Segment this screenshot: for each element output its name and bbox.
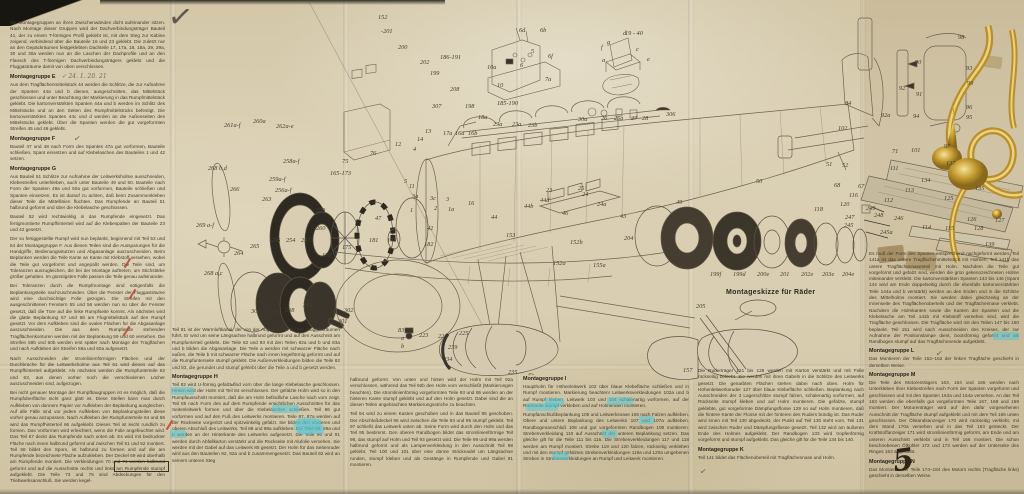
section-heading: Montagegruppe I: [523, 376, 689, 382]
part-number-label: 202e: [801, 271, 813, 278]
part-number-label: 118: [814, 206, 823, 213]
pencil-checkmark: ⌐: [527, 370, 535, 380]
part-number-label: 99: [967, 80, 973, 87]
section-heading: Montagegruppe N: [869, 459, 1019, 465]
part-number-label: 181: [369, 237, 378, 244]
part-number-label: 68: [834, 182, 840, 189]
part-number-label: 202: [420, 59, 429, 66]
part-number-label: 186-191: [440, 54, 461, 61]
part-number-label: g: [607, 39, 610, 46]
part-number-label: 6: [520, 62, 523, 69]
part-number-label: 120: [840, 201, 849, 208]
part-number-label: 28: [642, 115, 648, 122]
instruction-paragraph: Bei Toleranzen durch die Rumpfmontage si…: [10, 283, 165, 352]
tail-drawing: [788, 54, 883, 170]
part-number-label: 3a: [412, 193, 418, 200]
part-number-label: 91: [916, 91, 922, 98]
section-heading: Montagegruppe F: [10, 136, 165, 142]
part-number-label: 157: [683, 367, 692, 374]
section-heading: Montagegruppe K: [698, 447, 864, 453]
part-number-label: 199: [430, 70, 439, 77]
part-number-label: a: [401, 335, 404, 342]
part-number-label: 205: [696, 303, 705, 310]
part-number-label: 16a: [455, 130, 464, 137]
part-number-label: 90: [915, 59, 921, 66]
part-number-label: 208: [450, 86, 459, 93]
part-number-label: 10a: [487, 64, 496, 71]
part-number-label: 235: [508, 369, 517, 376]
text-column-4: Montagegruppe IHauptholm für Höhenleitwe…: [523, 374, 689, 466]
part-number-label: 26: [601, 115, 607, 122]
part-number-label: 260: [316, 225, 325, 232]
part-number-label: 51: [826, 161, 832, 168]
part-number-label: 257: [301, 237, 310, 244]
instruction-paragraph: Bauteil 52 wird rechtwinklig in das Rump…: [10, 214, 165, 233]
part-number-label: 4: [413, 146, 416, 153]
part-number-label: 307: [432, 103, 441, 110]
part-number-label: 71: [892, 148, 898, 155]
pen-box-annotation: [114, 461, 169, 472]
instruction-paragraph: Teil 94 wird zu einem Kasten geschoben u…: [350, 411, 513, 468]
part-number-label: 153: [506, 232, 515, 239]
part-number-label: 263: [262, 196, 271, 203]
part-number-label: 248: [874, 212, 883, 219]
section-heading: Montagegruppe H: [172, 374, 340, 380]
part-number-label: 182: [424, 241, 433, 248]
part-number-label: 297: [269, 309, 278, 316]
part-number-label: 178: [387, 237, 396, 244]
instruction-paragraph: Aus Bauteil 51 Schlitze zur Aufnahme der…: [10, 174, 165, 212]
part-number-label: 98: [958, 34, 964, 41]
part-number-label: 259a-f: [269, 176, 285, 183]
section-heading: Montagegruppe E✓ 24. 1. 20. 21: [10, 73, 165, 80]
part-number-label: 97: [944, 143, 950, 150]
section-heading: Montagegruppe M: [869, 372, 1019, 378]
highlighter-mark: [171, 387, 194, 395]
part-number-label: a: [602, 57, 605, 64]
part-number-label: 165-173: [330, 170, 351, 177]
part-number-label: 11: [409, 183, 415, 190]
highlighter-mark: [602, 430, 617, 438]
part-number-label: 47: [375, 215, 381, 222]
part-number-label: 137: [946, 160, 955, 167]
part-number-label: 49: [676, 199, 682, 206]
part-number-label: 300: [251, 308, 260, 315]
part-number-label: 112: [884, 197, 893, 204]
part-number-label: 127: [995, 217, 1004, 224]
part-number-label: 301: [338, 318, 347, 325]
wheels-row-drawing: [635, 206, 867, 270]
instruction-paragraph: Teil 141 bildet das Flächenoberteil mit …: [698, 455, 864, 461]
part-number-label: 261a-f: [224, 122, 240, 129]
part-number-label: 200: [398, 44, 407, 51]
part-number-label: 115: [945, 225, 954, 232]
part-number-label: 223: [419, 332, 428, 339]
part-number-label: 84: [845, 100, 851, 107]
text-column-5: Die Ruderträger 121 bis 128 werden mit K…: [698, 368, 864, 464]
part-number-label: 6f: [548, 53, 553, 60]
part-number-label: 298: [285, 307, 294, 314]
part-number-label: 95: [966, 114, 972, 121]
part-number-label: 268 b,d: [208, 165, 227, 172]
part-number-label: 52: [842, 162, 848, 169]
part-number-label: 5: [404, 178, 407, 185]
part-number-label: 92a: [881, 112, 890, 119]
part-number-label: e: [647, 56, 650, 63]
instruction-paragraph: halbrund geformt. Von unten und hinten w…: [350, 377, 513, 408]
part-number-label: 126: [967, 216, 976, 223]
part-number-label: 25a: [614, 115, 623, 122]
instruction-sheet: der Montagegruppen an ihren Zwischenwänd…: [0, 0, 1024, 494]
part-number-label: 185-190: [497, 100, 518, 107]
part-number-label: f: [601, 44, 603, 51]
part-number-label: 5: [531, 48, 534, 55]
part-number-label: 234: [443, 356, 452, 363]
part-number-label: 42: [427, 225, 433, 232]
part-number-label: c: [636, 46, 639, 53]
instruction-paragraph: Nach Ausschneiden der stromlinienförmige…: [10, 356, 165, 387]
wheel-sketch-caption: Montageskizze für Räder: [726, 289, 815, 296]
part-number-label: 268 a,c: [204, 270, 223, 277]
part-number-label: 96: [966, 104, 972, 111]
highlighter-mark: [993, 332, 1019, 340]
part-number-label: 24a: [597, 201, 606, 208]
part-number-label: 2: [434, 205, 437, 212]
part-number-label: 92: [899, 85, 905, 92]
part-number-label: 175: [342, 244, 351, 251]
part-number-label: 198: [465, 103, 474, 110]
part-number-label: 3: [446, 196, 449, 203]
part-number-label: 204e: [842, 271, 854, 278]
part-number-label: 44d: [540, 197, 549, 204]
part-number-label: 255: [271, 237, 280, 244]
part-number-label: 203e: [822, 271, 834, 278]
part-number-label: 12: [395, 141, 401, 148]
part-number-label: 306: [666, 111, 675, 118]
text-column-left: der Montagegruppen an ihren Zwischenwänd…: [10, 20, 165, 488]
section-heading: Montagegruppe L: [869, 348, 1019, 354]
part-number-label: 128: [974, 225, 983, 232]
part-number-label: 75: [342, 158, 348, 165]
pencil-checkmark: ✓: [229, 380, 237, 390]
instruction-paragraph: der Montagegruppen an ihren Zwischenwänd…: [10, 20, 165, 70]
part-number-label: 7a: [545, 76, 551, 83]
part-number-label: 113: [905, 187, 914, 194]
part-number-label: 30a: [578, 116, 587, 123]
part-number-label: -201: [381, 28, 393, 35]
part-number-label: 249: [866, 205, 875, 212]
text-column-2: Teil 81 ist der Warmluftkanal, der von d…: [172, 327, 340, 467]
part-number-label: 239: [448, 344, 457, 351]
part-number-label: 50: [756, 178, 762, 185]
part-number-label: 27: [631, 115, 637, 122]
part-number-label: 258a-f: [283, 158, 299, 165]
part-number-label: d: [623, 30, 626, 37]
highlighter-mark: [526, 403, 558, 411]
cockpit-interior-sketch: [344, 28, 670, 160]
instruction-paragraph: Das Montieren der Teile 174–184 des Moto…: [869, 467, 1019, 480]
part-number-label: 16b: [468, 130, 477, 137]
fuselage-drawing: [416, 97, 854, 342]
part-number-label: 135: [975, 185, 984, 192]
part-number-label: 46: [562, 210, 568, 217]
part-number-label: 101: [911, 147, 920, 154]
part-number-label: 225: [459, 330, 468, 337]
part-number-label: 1a: [448, 206, 454, 213]
part-number-label: 200e: [757, 271, 769, 278]
part-number-label: 134: [921, 177, 930, 184]
part-number-label: 14: [417, 136, 423, 143]
part-number-label: 94: [913, 113, 919, 120]
pencil-checkmark: ✓: [699, 467, 707, 477]
part-number-label: 269 a-f: [196, 222, 214, 229]
highlighter-mark: [272, 405, 299, 413]
part-number-label: 43: [620, 213, 626, 220]
part-number-label: 83: [398, 327, 404, 334]
part-number-label: 262a-e: [276, 123, 294, 130]
instruction-paragraph: Das Montieren der Teile 152–162 der link…: [869, 356, 1019, 369]
part-number-label: 260a: [253, 118, 266, 125]
part-number-label: 264: [234, 250, 243, 257]
part-number-label: 155a: [593, 262, 606, 269]
part-number-label: 152: [378, 14, 387, 21]
part-number-label: 111: [890, 165, 899, 172]
highlighter-mark: [297, 426, 324, 434]
part-number-label: 247: [845, 214, 854, 221]
part-number-label: 226: [438, 333, 447, 340]
part-number-label: 1: [410, 207, 413, 214]
part-number-label: b: [401, 343, 404, 350]
part-number-label: 152a: [553, 260, 566, 267]
part-number-label: 76: [370, 150, 376, 157]
part-number-label: 44b: [524, 203, 533, 210]
part-number-label: 116: [849, 192, 858, 199]
instruction-paragraph: Der so fertiggestellte Rumpf wird nun be…: [10, 236, 165, 280]
part-number-label: 199f: [710, 271, 721, 278]
part-number-label: 67: [858, 183, 864, 190]
highlighter-mark: [607, 397, 633, 405]
part-number-label: 44: [491, 214, 497, 221]
part-number-label: 125: [944, 195, 953, 202]
part-number-label: 139: [985, 241, 994, 248]
part-number-label: 245a: [880, 229, 893, 236]
part-number-label: 176: [322, 252, 331, 259]
part-number-label: 18a: [478, 114, 487, 121]
part-number-label: 23: [546, 187, 552, 194]
instruction-paragraph: Aus dem Tragflächenmittelstück 44 werden…: [10, 82, 165, 132]
part-number-label: 93: [966, 65, 972, 72]
part-number-label: 23a: [512, 121, 521, 128]
part-number-label: 246: [894, 215, 903, 222]
part-number-label: 6b: [540, 27, 546, 34]
text-column-3: halbrund geformt. Von unten und hinten w…: [350, 377, 513, 471]
pencil-checkmark: ✓: [935, 349, 943, 359]
highlighter-mark: [170, 430, 186, 438]
pencil-checkmark: ✓: [166, 0, 196, 37]
part-number-label: 3c: [430, 195, 436, 202]
part-number-label: 29a: [493, 121, 502, 128]
instruction-paragraph: Bauteil 47 und 48 nach Form des Spantes …: [10, 144, 165, 163]
part-number-label: 199d: [733, 271, 746, 278]
part-number-label: 114: [922, 224, 931, 231]
instruction-paragraph: Teil 81 ist der Warmluftkanal, der von d…: [172, 327, 340, 371]
part-number-label: 102: [838, 125, 847, 132]
engine-cowling-drawing: [231, 193, 428, 333]
part-number-label: 152b: [570, 239, 583, 246]
part-number-label: 299: [303, 302, 312, 309]
part-number-label: 256a-f: [275, 187, 291, 194]
part-number-label: 13: [425, 128, 431, 135]
part-number-label: 19 - 40: [625, 30, 643, 37]
instruction-paragraph: Die Ruderträger 121 bis 128 werden mit K…: [698, 368, 864, 444]
part-number-label: 24: [582, 191, 588, 198]
part-number-label: 6d: [519, 27, 525, 34]
part-number-label: 254: [286, 237, 295, 244]
section-heading: Montagegruppe G: [10, 166, 165, 172]
part-number-label: 201: [780, 271, 789, 278]
part-number-label: 10: [497, 82, 503, 89]
part-number-label: 253: [316, 207, 325, 214]
part-number-label: 16: [468, 200, 474, 207]
pencil-checkmark: ✓: [73, 134, 81, 144]
part-number-label: 17a: [443, 130, 452, 137]
part-number-label: 204: [624, 235, 633, 242]
part-number-label: 265: [250, 243, 259, 250]
handwritten-date-note: ✓ 24. 1. 20. 21: [62, 73, 107, 80]
highlighter-mark: [639, 416, 654, 424]
part-number-label: 302: [344, 307, 353, 314]
highlighter-mark: [552, 452, 569, 460]
part-number-label: 23b: [528, 122, 537, 129]
part-number-label: 266: [230, 186, 239, 193]
part-number-label: 245: [844, 222, 853, 229]
